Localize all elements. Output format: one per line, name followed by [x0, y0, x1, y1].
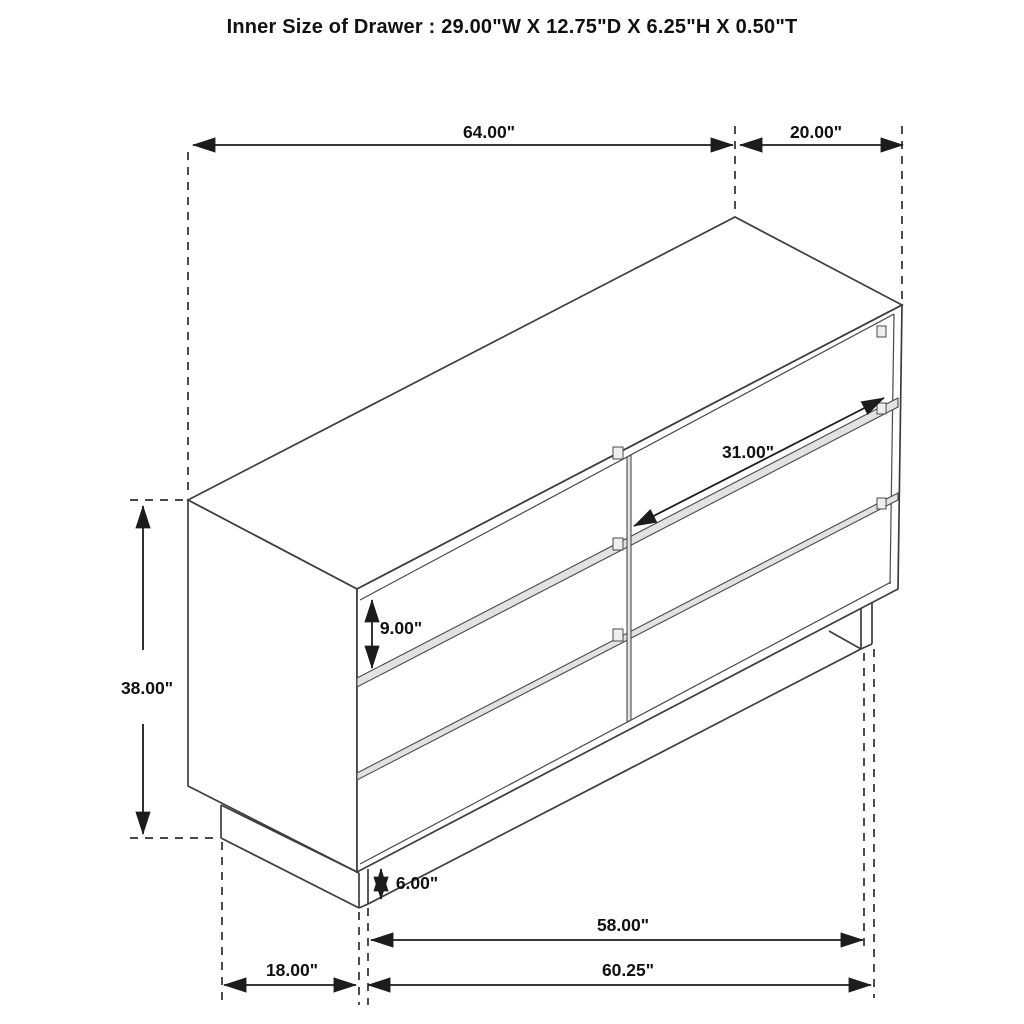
dimension-side-base-depth: 18.00": [224, 960, 356, 985]
drawer-notch: [877, 326, 886, 337]
dim-label-top-width: 64.00": [463, 122, 515, 142]
drawer-notch: [877, 498, 886, 509]
dim-label-side-base-depth: 18.00": [266, 960, 318, 980]
drawer-divider: [627, 455, 631, 722]
dimension-top-width: 64.00": [193, 122, 733, 145]
dim-label-leg-height: 6.00": [396, 873, 438, 893]
dimension-base-inner-width: 58.00": [371, 915, 863, 940]
dim-label-top-depth: 20.00": [790, 122, 842, 142]
dim-label-drawer-height: 9.00": [380, 618, 422, 638]
dim-label-base-outer-width: 60.25": [602, 960, 654, 980]
dresser-body: [188, 217, 902, 872]
front-right-leg-bottom-edge: [861, 644, 872, 649]
rear-stretcher-edge: [829, 631, 861, 649]
front-left-leg-bottom-edge: [359, 904, 368, 908]
dim-label-drawer-width: 31.00": [722, 442, 774, 462]
dimension-top-depth: 20.00": [740, 122, 903, 145]
diagram-canvas: Inner Size of Drawer : 29.00"W X 12.75"D…: [0, 0, 1024, 1024]
drawer-notch: [613, 538, 623, 550]
dimension-leg-height: 6.00": [381, 869, 438, 899]
drawer-notch: [613, 447, 623, 459]
dim-label-overall-height: 38.00": [121, 678, 173, 698]
drawer-notch: [613, 629, 623, 641]
dimension-overall-height: 38.00": [121, 506, 173, 834]
dim-label-base-inner-width: 58.00": [597, 915, 649, 935]
dresser-dimension-diagram: 64.00" 20.00" 31.00" 38.00" 9.00" 6.00" …: [0, 0, 1024, 1024]
drawer-notch: [877, 403, 886, 414]
dimension-base-outer-width: 60.25": [368, 960, 871, 985]
